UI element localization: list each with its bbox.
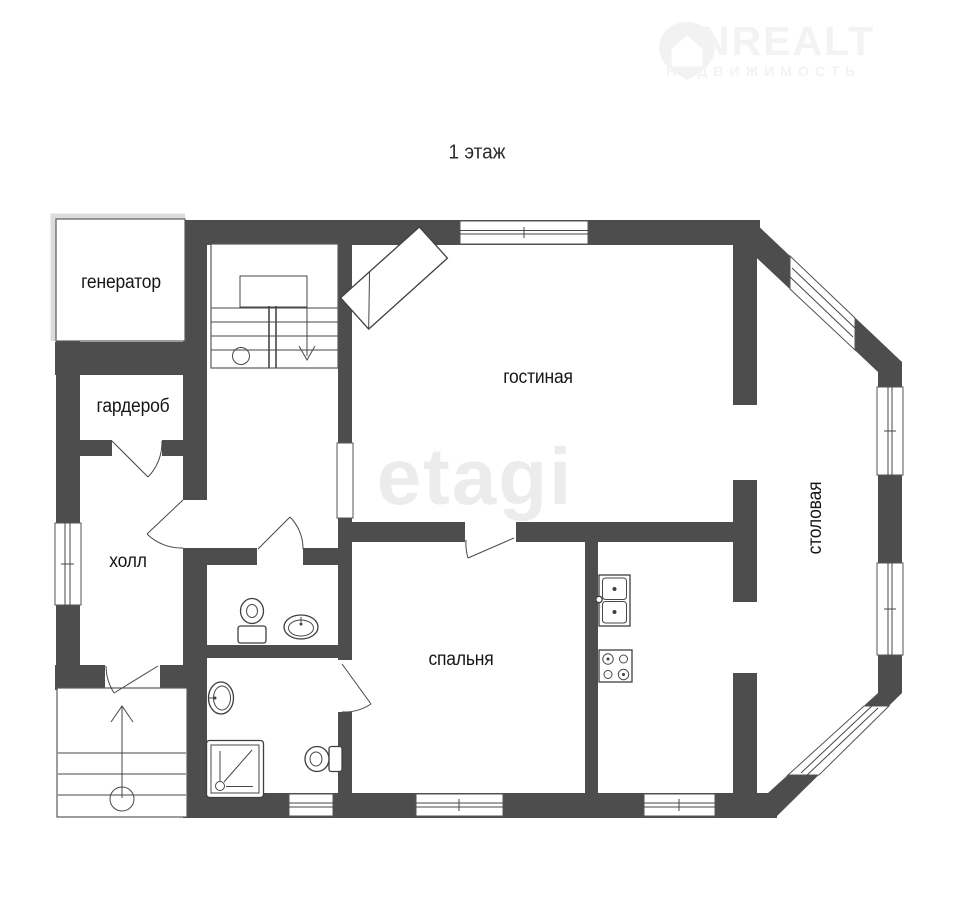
room-label-hall: холл [109, 551, 147, 573]
kitchen-sink-icon [596, 575, 630, 626]
wall-wc-south [205, 645, 338, 658]
room-label-living: гостиная [503, 367, 573, 389]
wall-dining-west [733, 245, 757, 793]
window-bottom-2 [416, 794, 503, 816]
floor-plan-drawing [0, 0, 960, 910]
wall-living-bedroom [338, 522, 757, 542]
wall-kitchen-divider [585, 540, 598, 793]
window-right-lower [877, 563, 903, 655]
door-wc [258, 517, 303, 549]
window-right-upper [877, 387, 903, 475]
room-label-dining: столовая [805, 482, 827, 555]
opening-corridor-living [337, 443, 353, 518]
staircase-icon [211, 244, 338, 368]
window-bottom-1 [289, 794, 333, 816]
wall-left [56, 340, 80, 690]
opening-porch-door [105, 664, 160, 691]
opening-kitchen-dining [732, 602, 758, 673]
floor-plan: ONREALT НЕДВИЖИМОСТЬ 1 этаж etagi [0, 0, 960, 910]
window-diagonal-top-right [788, 256, 857, 350]
opening-hall-corridor [182, 500, 208, 548]
wc-sink-icon [284, 615, 318, 639]
opening-bedroom-door [465, 521, 516, 542]
opening-living-dining [732, 405, 758, 480]
room-label-bedroom: спальня [428, 649, 493, 671]
wc-toilet-icon [238, 599, 266, 644]
window-left [55, 523, 81, 605]
stove-icon [599, 650, 632, 682]
bath-sink-icon [208, 682, 234, 714]
entry-stairs-icon [57, 688, 187, 817]
shower-icon [207, 741, 264, 798]
opening-wc-door [257, 547, 303, 566]
door-hall [147, 500, 183, 548]
room-label-wardrobe: гардероб [97, 396, 170, 418]
window-diagonal-bottom-right [788, 704, 889, 777]
window-top [460, 221, 588, 244]
room-label-generator: генератор [81, 272, 161, 294]
bath-toilet-icon [305, 747, 342, 772]
window-bottom-3 [644, 794, 715, 816]
